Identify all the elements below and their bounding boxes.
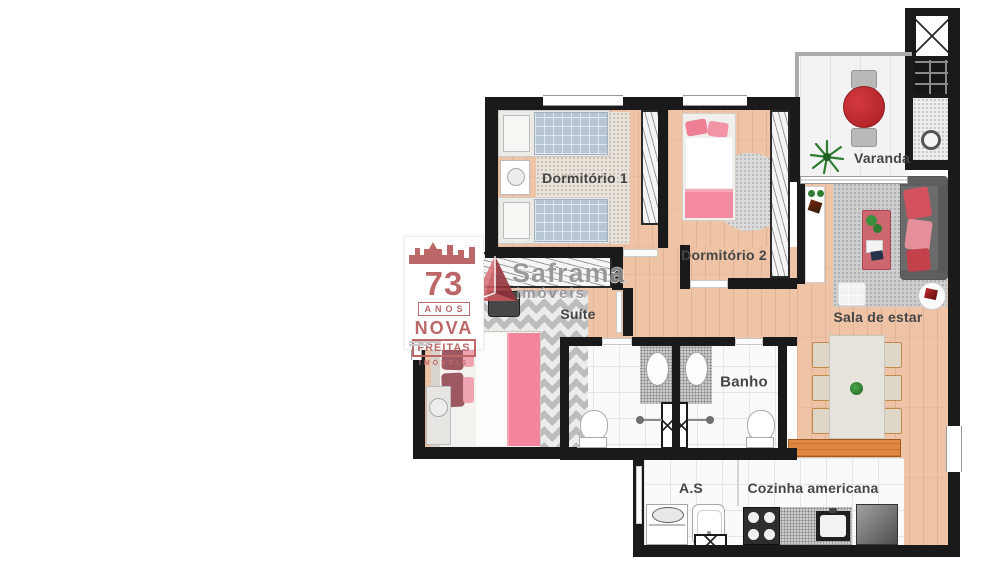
bar-counter bbox=[788, 439, 901, 457]
window-dorm1 bbox=[543, 95, 623, 106]
shower-arm bbox=[641, 419, 662, 421]
wall-bath-top-b bbox=[632, 337, 735, 346]
wall-bath-top-c bbox=[763, 337, 797, 346]
burner-icon bbox=[764, 512, 775, 523]
blanket-pink-suite bbox=[507, 333, 540, 446]
door-opening-dorm2 bbox=[690, 280, 728, 288]
dining-chair bbox=[883, 342, 902, 368]
wall-bath-right bbox=[778, 346, 787, 448]
washer-panel bbox=[649, 524, 685, 526]
balcony-railing bbox=[795, 52, 912, 56]
pouf bbox=[838, 282, 866, 306]
dining-chair bbox=[883, 375, 902, 401]
door-opening-banho bbox=[735, 338, 763, 345]
wall-dorm1-left bbox=[485, 110, 498, 258]
round-red-table bbox=[843, 86, 885, 128]
partition-line bbox=[737, 460, 739, 506]
window-living bbox=[946, 426, 962, 472]
elevator-shaft bbox=[916, 16, 948, 56]
burner-icon bbox=[748, 529, 759, 540]
kitchen-sink bbox=[816, 511, 850, 541]
pillow-pink-2 bbox=[707, 121, 729, 139]
apartment-floor-plan: Dormitório 1 Dormitório 2 Varanda Sala d… bbox=[0, 0, 1000, 563]
room-label-dormitorio-1: Dormitório 1 bbox=[542, 170, 628, 186]
sofa-pillow bbox=[903, 186, 932, 220]
burner-icon bbox=[764, 529, 775, 540]
wall-dorm2-right bbox=[790, 97, 800, 182]
saframa-watermark: Saframa imóveis bbox=[470, 246, 680, 306]
wall-bath-middle bbox=[672, 346, 680, 448]
room-label-cozinha-americana: Cozinha americana bbox=[748, 480, 879, 496]
balcony-chair-bottom bbox=[851, 128, 877, 147]
room-label-sala-de-estar: Sala de estar bbox=[834, 309, 923, 325]
city-skyline-icon bbox=[409, 240, 479, 264]
ac-grid-unit bbox=[915, 60, 949, 94]
wardrobe-dorm2 bbox=[770, 110, 790, 278]
room-label-dormitorio-2: Dormitório 2 bbox=[681, 247, 767, 263]
wall-suite-bottom bbox=[413, 447, 577, 459]
shower-head-icon bbox=[706, 416, 714, 424]
sink-basin bbox=[646, 352, 669, 386]
window-dorm2 bbox=[683, 95, 747, 106]
fine-print bbox=[409, 340, 441, 346]
wall-bath-left bbox=[560, 337, 569, 457]
wall-top bbox=[485, 97, 797, 110]
lamp-icon bbox=[429, 398, 448, 417]
wall-dorm2-bottom bbox=[728, 278, 797, 289]
door-opening-bath-suite bbox=[602, 338, 632, 345]
washing-machine bbox=[646, 504, 688, 545]
saframa-sub-text: imóveis bbox=[516, 285, 586, 302]
bed-2-mattress bbox=[534, 199, 608, 242]
lamp-icon bbox=[507, 168, 525, 186]
centerpiece bbox=[850, 382, 863, 395]
bed-1-mattress bbox=[534, 112, 608, 155]
bed-sheet bbox=[685, 137, 733, 189]
plant-pot-icon bbox=[817, 190, 824, 197]
brand-nova: NOVA bbox=[405, 319, 483, 338]
plant-pot-icon bbox=[873, 224, 882, 233]
room-label-as: A.S bbox=[679, 480, 703, 496]
wall-right bbox=[948, 8, 960, 557]
wall-bottom bbox=[633, 545, 955, 557]
sofa-pillow bbox=[906, 248, 931, 272]
washer-lid bbox=[652, 507, 684, 523]
wall-dorm1-dorm2 bbox=[658, 110, 668, 248]
plant-icon bbox=[808, 138, 846, 176]
years-number: 73 bbox=[405, 269, 483, 299]
faucet-icon bbox=[829, 508, 837, 513]
room-label-varanda: Varanda bbox=[854, 150, 910, 166]
sink-bowl bbox=[820, 515, 846, 537]
room-label-banho: Banho bbox=[720, 374, 768, 391]
sofa-pillow bbox=[904, 219, 932, 252]
room-label-suite: Suíte bbox=[560, 306, 595, 322]
toilet-tank bbox=[579, 437, 607, 448]
balcony-railing bbox=[795, 52, 799, 97]
book bbox=[870, 250, 883, 261]
bed-1-pillow bbox=[503, 115, 530, 152]
bed-2-pillow bbox=[503, 202, 530, 239]
pillow-pink-suite-2 bbox=[463, 377, 474, 403]
decor-red bbox=[924, 288, 938, 300]
sink-basin bbox=[685, 352, 708, 386]
shower-head-icon bbox=[636, 416, 644, 424]
toilet-tank bbox=[746, 437, 774, 448]
blanket-pink bbox=[685, 189, 733, 218]
brand-imoveis: IMÓVEIS bbox=[405, 360, 483, 367]
stove-cooktop bbox=[743, 507, 780, 545]
sofa-backrest bbox=[938, 185, 947, 273]
sliding-glass-door bbox=[800, 176, 908, 184]
burner-icon bbox=[748, 512, 759, 523]
plant-pot-icon bbox=[808, 190, 815, 197]
refrigerator bbox=[856, 504, 898, 545]
utility-ledge bbox=[913, 98, 951, 160]
door-leaf-laundry bbox=[636, 466, 642, 524]
wall-bath-bottom bbox=[560, 448, 797, 460]
water-heater-icon bbox=[921, 130, 941, 150]
dining-chair bbox=[883, 408, 902, 434]
nova-freitas-watermark: 73 ANOS NOVA FREITAS IMÓVEIS bbox=[404, 236, 484, 350]
years-label: ANOS bbox=[418, 302, 469, 316]
wall-living-left bbox=[797, 178, 805, 284]
